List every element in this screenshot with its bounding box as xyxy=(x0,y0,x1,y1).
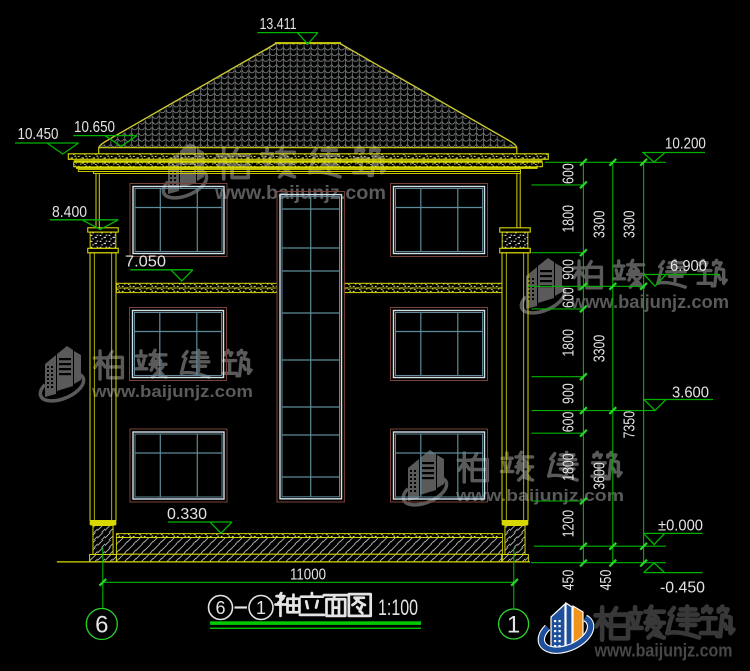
svg-text:1200: 1200 xyxy=(561,510,578,538)
svg-text:600: 600 xyxy=(561,287,578,308)
svg-text:600: 600 xyxy=(561,411,578,432)
svg-text:10.650: 10.650 xyxy=(74,119,115,136)
svg-text:10.450: 10.450 xyxy=(18,126,59,143)
svg-text:1800: 1800 xyxy=(561,329,578,357)
svg-text:11000: 11000 xyxy=(290,567,326,584)
svg-text:10.200: 10.200 xyxy=(665,136,706,153)
svg-text:6: 6 xyxy=(215,598,225,618)
svg-text:1: 1 xyxy=(507,612,520,639)
svg-text:3300: 3300 xyxy=(622,210,639,238)
svg-text:13.411: 13.411 xyxy=(260,16,297,33)
svg-text:900: 900 xyxy=(561,259,578,280)
svg-text:900: 900 xyxy=(561,383,578,404)
svg-text:6.900: 6.900 xyxy=(670,258,707,275)
svg-text:8.400: 8.400 xyxy=(52,204,87,221)
svg-text:www.baijunjz.com: www.baijunjz.com xyxy=(91,382,253,401)
svg-text:1:100: 1:100 xyxy=(378,595,418,620)
svg-text:-0.450: -0.450 xyxy=(660,580,705,597)
svg-text:www.baijunjz.com: www.baijunjz.com xyxy=(570,292,729,312)
svg-text:3300: 3300 xyxy=(592,210,609,238)
svg-text:6: 6 xyxy=(95,612,108,639)
svg-text:600: 600 xyxy=(561,163,578,184)
svg-text:7350: 7350 xyxy=(622,411,639,439)
svg-text:450: 450 xyxy=(598,570,615,591)
svg-text:www.baijunjz.com: www.baijunjz.com xyxy=(214,183,386,204)
svg-text:7.050: 7.050 xyxy=(125,254,166,271)
svg-text:3600: 3600 xyxy=(592,462,609,490)
svg-text:1800: 1800 xyxy=(561,205,578,233)
svg-text:3300: 3300 xyxy=(592,335,609,363)
svg-text:1800: 1800 xyxy=(561,453,578,481)
svg-text:www.baijunjz.com: www.baijunjz.com xyxy=(594,641,733,661)
svg-text:1: 1 xyxy=(256,598,266,618)
svg-text:±0.000: ±0.000 xyxy=(658,518,703,535)
svg-text:0.330: 0.330 xyxy=(167,506,207,523)
svg-text:450: 450 xyxy=(561,570,578,591)
